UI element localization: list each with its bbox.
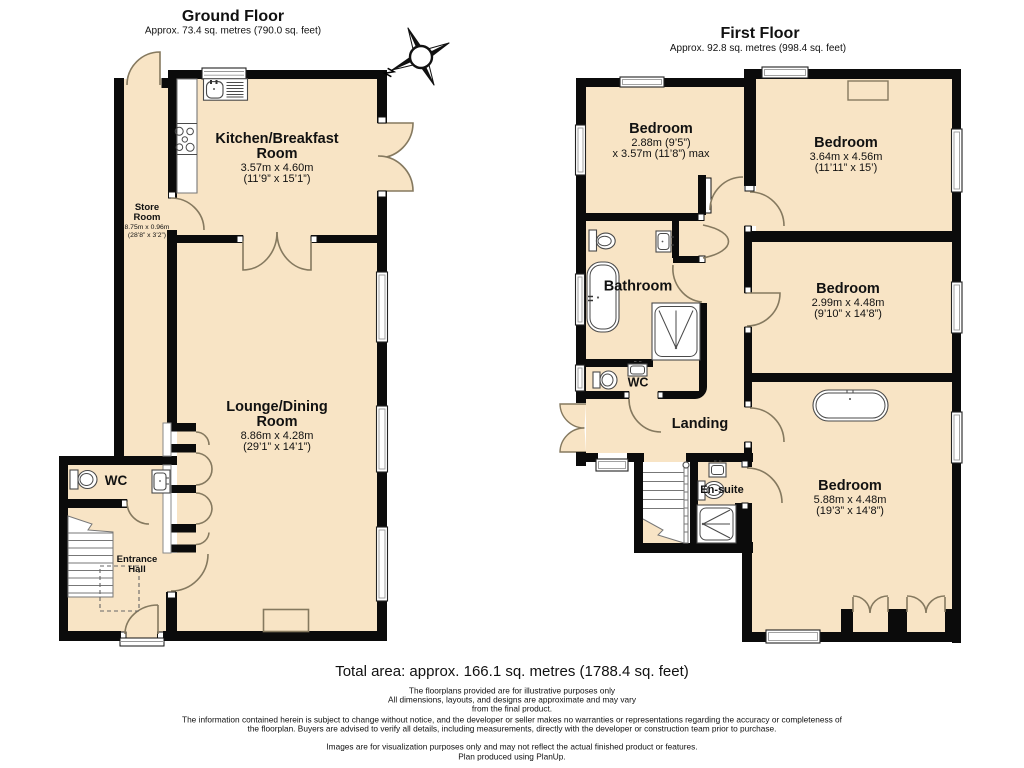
svg-text:Images are for visualization p: Images are for visualization purposes on… xyxy=(326,742,697,752)
svg-text:(19’3” x 14’8”): (19’3” x 14’8”) xyxy=(816,505,884,517)
svg-text:Room: Room xyxy=(134,212,161,223)
svg-text:First Floor: First Floor xyxy=(720,25,799,42)
svg-text:Bedroom: Bedroom xyxy=(629,121,693,137)
svg-text:from the final product.: from the final product. xyxy=(472,704,552,714)
svg-text:Room: Room xyxy=(256,146,297,162)
svg-text:(29’1” x 14’1”): (29’1” x 14’1”) xyxy=(243,441,311,453)
svg-text:Bedroom: Bedroom xyxy=(816,281,880,297)
svg-text:Landing: Landing xyxy=(672,416,728,432)
svg-text:the floorplan. Buyers are advi: the floorplan. Buyers are advised to ver… xyxy=(248,724,777,734)
svg-text:Approx. 73.4 sq. metres (790.0: Approx. 73.4 sq. metres (790.0 sq. feet) xyxy=(145,26,321,37)
svg-text:Bedroom: Bedroom xyxy=(814,135,878,151)
svg-text:Kitchen/Breakfast: Kitchen/Breakfast xyxy=(215,131,338,147)
svg-text:Approx. 92.8 sq. metres (998.4: Approx. 92.8 sq. metres (998.4 sq. feet) xyxy=(670,43,846,54)
svg-text:Ground Floor: Ground Floor xyxy=(182,8,284,25)
svg-text:En-suite: En-suite xyxy=(700,484,743,496)
svg-text:Plan produced using PlanUp.: Plan produced using PlanUp. xyxy=(458,752,565,762)
svg-text:8.75m x 0.96m: 8.75m x 0.96m xyxy=(125,224,170,231)
svg-text:Bedroom: Bedroom xyxy=(818,478,882,494)
svg-text:WC: WC xyxy=(105,473,128,488)
svg-text:WC: WC xyxy=(628,376,649,390)
svg-text:(11’11” x 15’): (11’11” x 15’) xyxy=(815,162,878,174)
svg-text:(28’8” x 3’2”): (28’8” x 3’2”) xyxy=(128,232,166,239)
svg-text:Total area: approx. 166.1 sq.: Total area: approx. 166.1 sq. metres (17… xyxy=(335,663,689,680)
svg-text:(11’9” x 15’1”): (11’9” x 15’1”) xyxy=(243,173,310,185)
svg-text:x 3.57m (11’8”) max: x 3.57m (11’8”) max xyxy=(613,148,710,160)
svg-text:Hall: Hall xyxy=(128,564,145,575)
svg-text:(9’10” x 14’8”): (9’10” x 14’8”) xyxy=(814,308,882,320)
svg-text:Bathroom: Bathroom xyxy=(604,279,672,295)
svg-text:Lounge/Dining: Lounge/Dining xyxy=(226,399,327,415)
svg-text:Room: Room xyxy=(256,414,297,430)
